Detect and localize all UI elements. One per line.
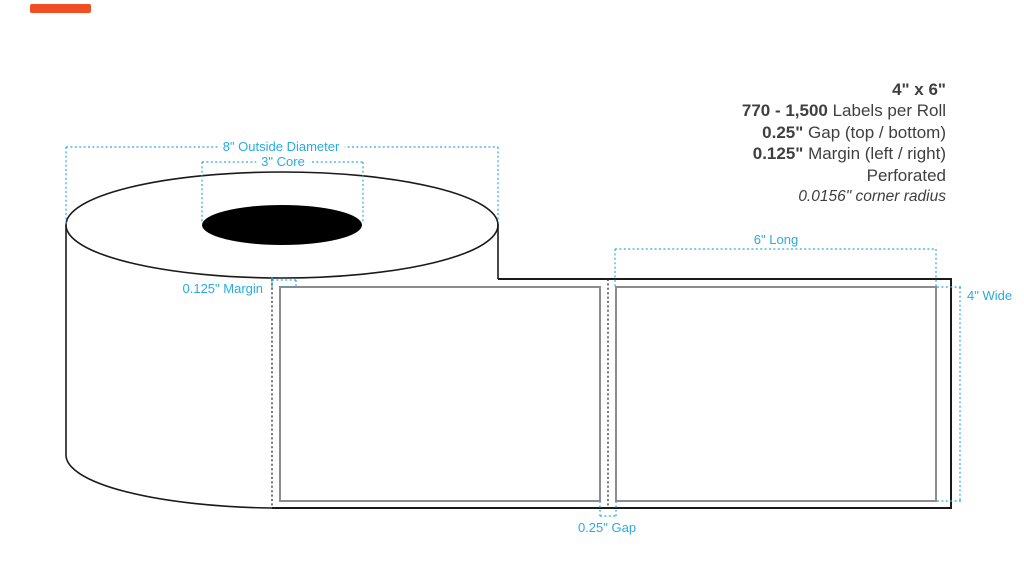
gap-label: 0.25" Gap — [578, 521, 636, 535]
spec-size-value: 4" x 6" — [892, 80, 946, 99]
label-roll-spec-diagram: 8" Outside Diameter 3" Core 0.125" Margi… — [0, 0, 1024, 562]
spec-perforated: Perforated — [742, 165, 946, 186]
long-label: 6" Long — [754, 233, 798, 247]
roll-core-hole — [202, 205, 362, 245]
outside-diameter-label: 8" Outside Diameter — [218, 140, 345, 154]
spec-margin: 0.125" Margin (left / right) — [742, 143, 946, 164]
spec-gap: 0.25" Gap (top / bottom) — [742, 122, 946, 143]
margin-label: 0.125" Margin — [183, 282, 264, 296]
label-1 — [280, 287, 600, 501]
spec-corner-radius: 0.0156" corner radius — [742, 186, 946, 207]
spec-gap-value: 0.25" — [762, 123, 803, 142]
spec-size: 4" x 6" — [742, 79, 946, 100]
spec-panel: 4" x 6" 770 - 1,500 Labels per Roll 0.25… — [742, 79, 946, 207]
core-label: 3" Core — [256, 155, 310, 169]
spec-margin-value: 0.125" — [753, 144, 804, 163]
spec-count-value: 770 - 1,500 — [742, 101, 828, 120]
spec-labels-per-roll: 770 - 1,500 Labels per Roll — [742, 100, 946, 121]
wide-label: 4" Wide — [967, 289, 1012, 303]
label-2 — [616, 287, 936, 501]
